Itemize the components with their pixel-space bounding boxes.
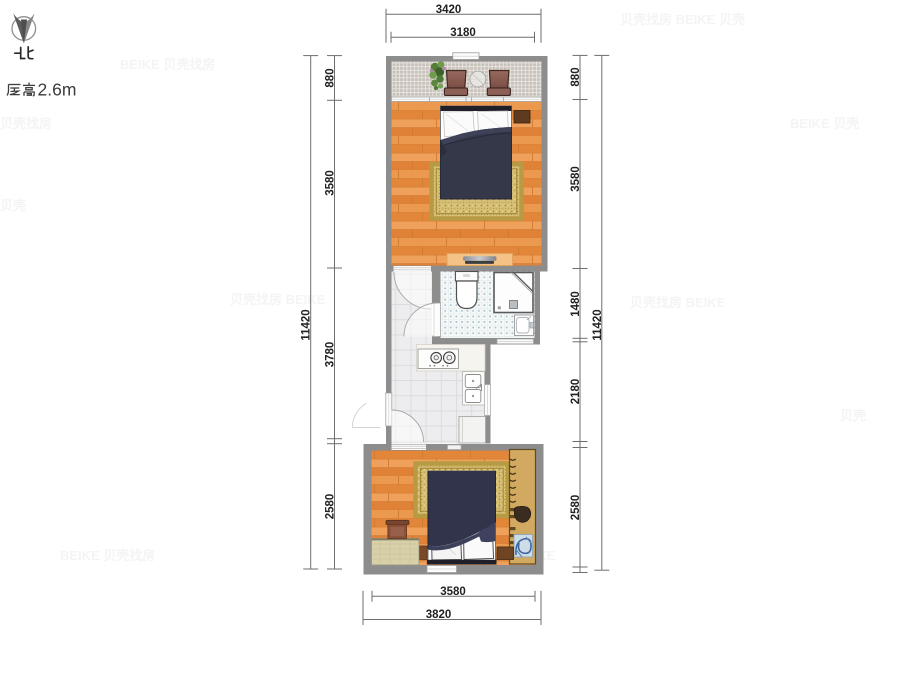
svg-text:2180: 2180	[570, 379, 582, 405]
svg-text:3580: 3580	[570, 166, 582, 192]
svg-text:3580: 3580	[440, 586, 466, 598]
svg-text:2.6m: 2.6m	[38, 80, 77, 100]
svg-text:3420: 3420	[436, 4, 462, 16]
svg-text:BEIKE 贝壳: BEIKE 贝壳	[790, 116, 859, 131]
svg-text:BEIKE 贝壳找房: BEIKE 贝壳找房	[60, 548, 155, 563]
svg-text:880: 880	[570, 67, 582, 86]
svg-text:3780: 3780	[325, 342, 337, 368]
svg-text:3820: 3820	[426, 609, 452, 621]
svg-text:11420: 11420	[592, 309, 604, 340]
svg-text:3180: 3180	[450, 27, 476, 39]
svg-text:贝壳找房 BEIKE 贝壳: 贝壳找房 BEIKE 贝壳	[620, 12, 745, 27]
svg-text:2580: 2580	[570, 495, 582, 521]
svg-text:BEIKE 贝壳找房: BEIKE 贝壳找房	[120, 57, 215, 72]
svg-text:3580: 3580	[325, 170, 337, 196]
svg-text:880: 880	[325, 68, 337, 87]
svg-text:1480: 1480	[570, 291, 582, 317]
svg-text:2580: 2580	[325, 494, 337, 520]
svg-text:11420: 11420	[301, 309, 313, 340]
svg-text:贝壳找房: 贝壳找房	[0, 116, 52, 131]
svg-text:贝壳找房 BEIKE: 贝壳找房 BEIKE	[630, 295, 726, 310]
svg-text:贝壳找房 BEIKE: 贝壳找房 BEIKE	[230, 292, 326, 307]
svg-text:贝壳: 贝壳	[0, 198, 26, 213]
svg-text:贝壳: 贝壳	[840, 408, 866, 423]
